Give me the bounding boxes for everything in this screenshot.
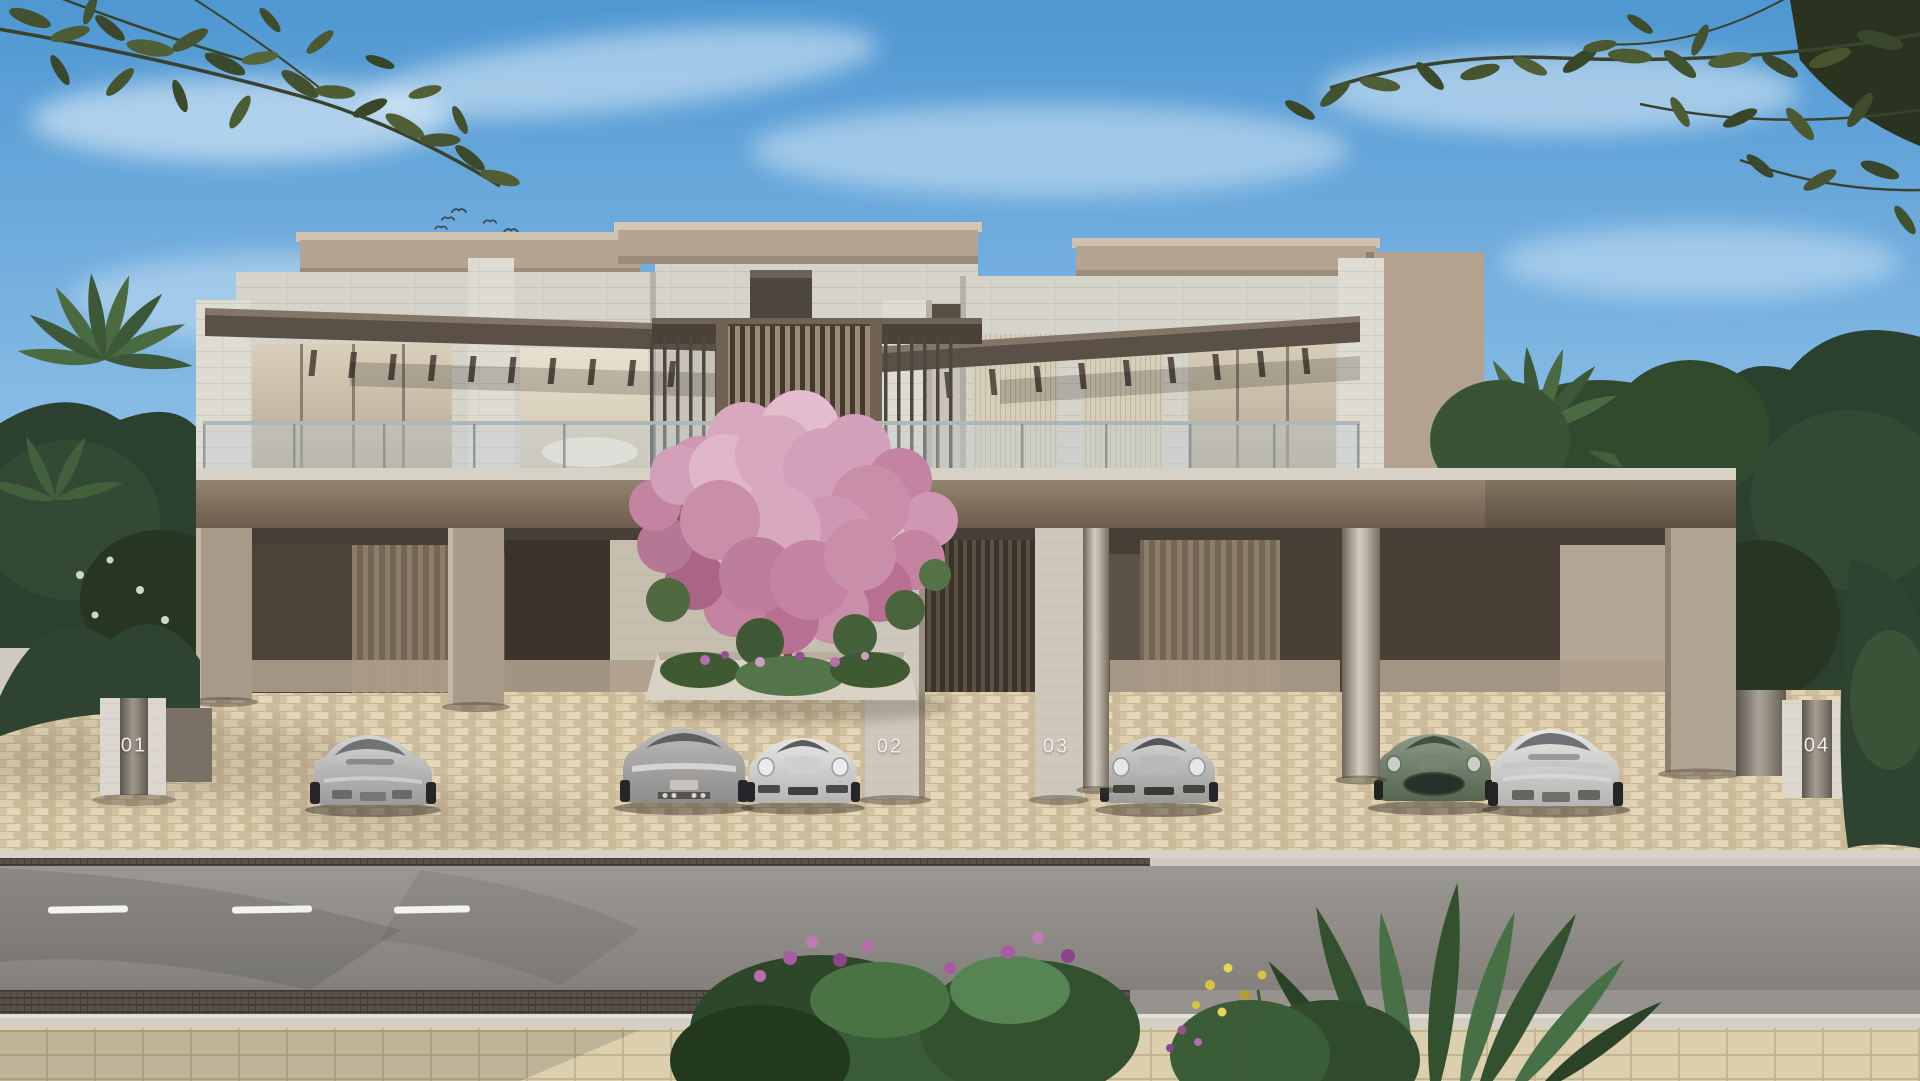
scene-canvas — [0, 0, 1920, 1081]
carport-level — [196, 528, 1736, 693]
drain-grate-far — [0, 858, 1150, 867]
driveway-pavers — [0, 690, 1920, 858]
unit-number-02: 02 — [877, 736, 903, 759]
unit-number-04: 04 — [1804, 735, 1830, 758]
unit-number-03: 03 — [1043, 736, 1069, 759]
unit-number-01: 01 — [121, 735, 147, 758]
metal-pillar — [1342, 528, 1380, 778]
floor-slab-fascia — [196, 468, 1736, 536]
architectural-render: 01 02 03 04 — [0, 0, 1920, 1081]
metal-pillar — [1083, 528, 1109, 788]
lane-markings — [48, 905, 470, 913]
